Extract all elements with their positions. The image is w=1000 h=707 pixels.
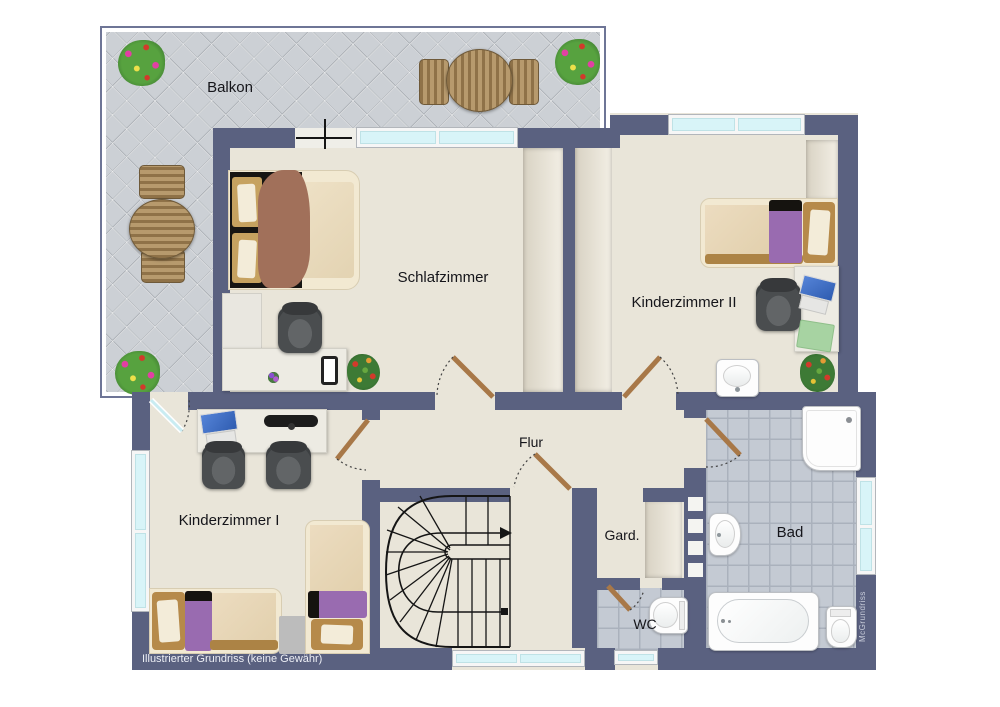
double-bed [228, 170, 360, 290]
kids2-bed [700, 198, 838, 268]
bedroom-window [356, 127, 518, 148]
kids1-office-chair-left [202, 445, 245, 489]
window-pane [860, 481, 872, 525]
kids1-bed-vertical [305, 520, 370, 654]
kids1-bed-horizontal [149, 588, 282, 654]
room-label-wc: WC [629, 616, 661, 632]
bathroom-sink [709, 513, 741, 556]
kids2-plant [800, 354, 835, 392]
faucet-dot [728, 620, 731, 623]
bathroom-window [856, 477, 876, 575]
window-pane [456, 654, 517, 663]
bed-blanket [258, 170, 310, 288]
wall-mid-horizontal-1 [188, 392, 435, 410]
watermark-brand: McGrundriss [858, 584, 874, 650]
bed-pillowcase [237, 184, 257, 223]
bedroom-plant [347, 354, 380, 390]
window-pane [520, 654, 581, 663]
kids1-window [131, 450, 150, 612]
window-pane [672, 118, 735, 131]
wall-kids2-right [838, 115, 858, 408]
faucet-dot [717, 533, 721, 537]
wall-wardrobe-wc-left [597, 578, 640, 590]
bed-blanket-edge [308, 591, 319, 618]
window-pane [135, 454, 146, 530]
bed-pillowcase [807, 209, 830, 255]
wall-bottom-middle [585, 648, 615, 670]
window-pane [618, 654, 654, 661]
floorplan: Illustrierter Grundriss (keine Gewähr) [0, 0, 1000, 707]
window-pane [360, 131, 436, 144]
tablet [321, 356, 338, 385]
balcony-round-table-top [446, 49, 513, 112]
wall-stairs-right [572, 488, 597, 648]
flower-pot-top-left [118, 40, 165, 86]
bed-mattress [310, 525, 363, 591]
wall-closet-divider [563, 128, 575, 392]
small-flower [267, 371, 280, 384]
kids2-window [668, 114, 805, 135]
kids1-rug [279, 616, 308, 654]
room-label-wardrobe: Gard. [591, 527, 653, 543]
bed-blanket-edge [769, 200, 802, 211]
balcony-chair-upper [139, 165, 185, 199]
wall-wardrobe-wc-right [662, 578, 684, 590]
window-pane [860, 528, 872, 572]
bathtub [708, 592, 819, 651]
bedroom-closet [523, 148, 563, 392]
kids2-closet [575, 140, 612, 392]
room-label-kids1: Kinderzimmer I [153, 512, 305, 529]
wall-niche-4 [688, 563, 703, 577]
wall-kids1-right-upper [362, 392, 380, 420]
flower-pot-top-right [555, 39, 600, 85]
shower [802, 406, 861, 471]
bed-rail [210, 640, 278, 650]
kids2-wardrobe [806, 140, 838, 200]
flower-pot-bottom-left [115, 351, 160, 395]
stairs-window [452, 650, 585, 667]
toilet-tank [679, 601, 685, 630]
wall-kids2-top-left [610, 115, 668, 135]
wall-bottom-right [658, 648, 876, 670]
wall-niche-3 [688, 541, 703, 555]
window-pane [738, 118, 801, 131]
bed-pillowcase [157, 599, 181, 642]
bed-pillowcase [321, 624, 354, 644]
faucet-dot [721, 619, 725, 623]
kids1-monitor [264, 415, 318, 427]
balcony-round-table-left [129, 199, 195, 259]
window-pane [135, 533, 146, 609]
room-label-bedroom: Schlafzimmer [368, 269, 518, 286]
bedroom-office-chair [278, 307, 322, 353]
wc-window [614, 650, 658, 665]
wall-niche-2 [688, 519, 703, 533]
shower-drain [846, 417, 852, 423]
monitor-stand [288, 423, 295, 430]
kids2-washbasin [716, 359, 759, 397]
wall-mid-horizontal-2 [495, 392, 622, 410]
room-label-kids2: Kinderzimmer II [608, 294, 760, 311]
wall-bath-left-upper [684, 400, 706, 418]
window-pane [439, 131, 515, 144]
kids2-mat [796, 319, 835, 352]
bed-blanket-edge [185, 591, 212, 601]
kids1-office-chair-right [266, 445, 311, 489]
toilet-tank [830, 609, 851, 617]
wall-niche-1 [688, 497, 703, 511]
basin [723, 365, 751, 387]
bathroom-toilet [826, 606, 857, 648]
wall-stairs-top [380, 488, 510, 502]
bedroom-dresser [222, 293, 262, 350]
bed-mattress [212, 593, 276, 641]
toilet-bowl [831, 619, 850, 643]
faucet-dot [735, 387, 740, 392]
room-label-hallway: Flur [500, 434, 562, 450]
kids2-office-chair [756, 283, 801, 331]
room-label-bathroom: Bad [768, 524, 812, 541]
balcony-chair-left [419, 59, 449, 105]
bed-pillowcase [237, 240, 257, 279]
balcony-chair-right [509, 59, 539, 105]
room-label-balcony: Balkon [178, 79, 282, 96]
bed-mattress [705, 205, 769, 255]
balcony-door-threshold [295, 128, 356, 148]
wall-kids1-left-upper [132, 392, 150, 450]
